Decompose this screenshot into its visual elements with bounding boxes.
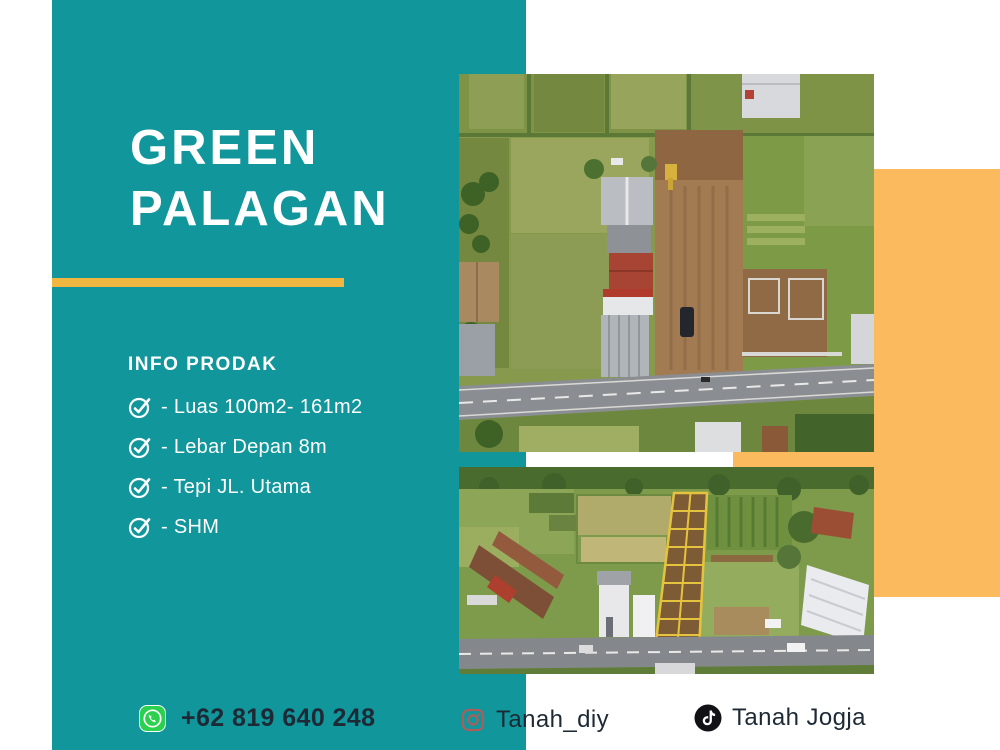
circled-check-icon	[128, 515, 152, 539]
parked-car	[680, 307, 694, 337]
title-line-2: PALAGAN	[130, 179, 390, 240]
whatsapp-icon	[139, 705, 166, 732]
tiktok-icon	[694, 704, 722, 732]
title-underline-bar	[52, 278, 344, 287]
list-item: - Luas 100m2- 161m2	[128, 394, 362, 420]
title-line-1: GREEN	[130, 118, 390, 179]
instagram-icon	[461, 708, 485, 732]
aerial-photo-bottom	[459, 467, 874, 674]
info-heading: INFO PRODAK	[128, 354, 362, 376]
info-item-label: - Tepi JL. Utama	[161, 476, 311, 499]
circled-check-icon	[128, 475, 152, 499]
list-item: - Tepi JL. Utama	[128, 474, 362, 500]
info-item-label: - Lebar Depan 8m	[161, 436, 327, 459]
list-item: - Lebar Depan 8m	[128, 434, 362, 460]
info-item-label: - SHM	[161, 516, 219, 539]
tiktok-contact: Tanah Jogja	[694, 704, 866, 732]
flyer-canvas: GREEN PALAGAN INFO PRODAK - Luas 100m2- …	[0, 0, 1000, 750]
tiktok-handle: Tanah Jogja	[732, 704, 866, 732]
aerial-photo-top	[459, 74, 874, 452]
excavator	[665, 164, 677, 180]
info-item-label: - Luas 100m2- 161m2	[161, 396, 362, 419]
circled-check-icon	[128, 435, 152, 459]
whatsapp-contact: +62 819 640 248	[139, 704, 375, 733]
instagram-contact: Tanah_diy	[461, 706, 609, 734]
info-section: INFO PRODAK - Luas 100m2- 161m2 - Lebar …	[128, 354, 362, 554]
whatsapp-number: +62 819 640 248	[181, 704, 375, 733]
page-title: GREEN PALAGAN	[130, 118, 390, 240]
circled-check-icon	[128, 395, 152, 419]
contact-footer: +62 819 640 248 Tanah_diy Tanah Jogja	[0, 698, 1000, 744]
instagram-handle: Tanah_diy	[496, 706, 609, 734]
list-item: - SHM	[128, 514, 362, 540]
